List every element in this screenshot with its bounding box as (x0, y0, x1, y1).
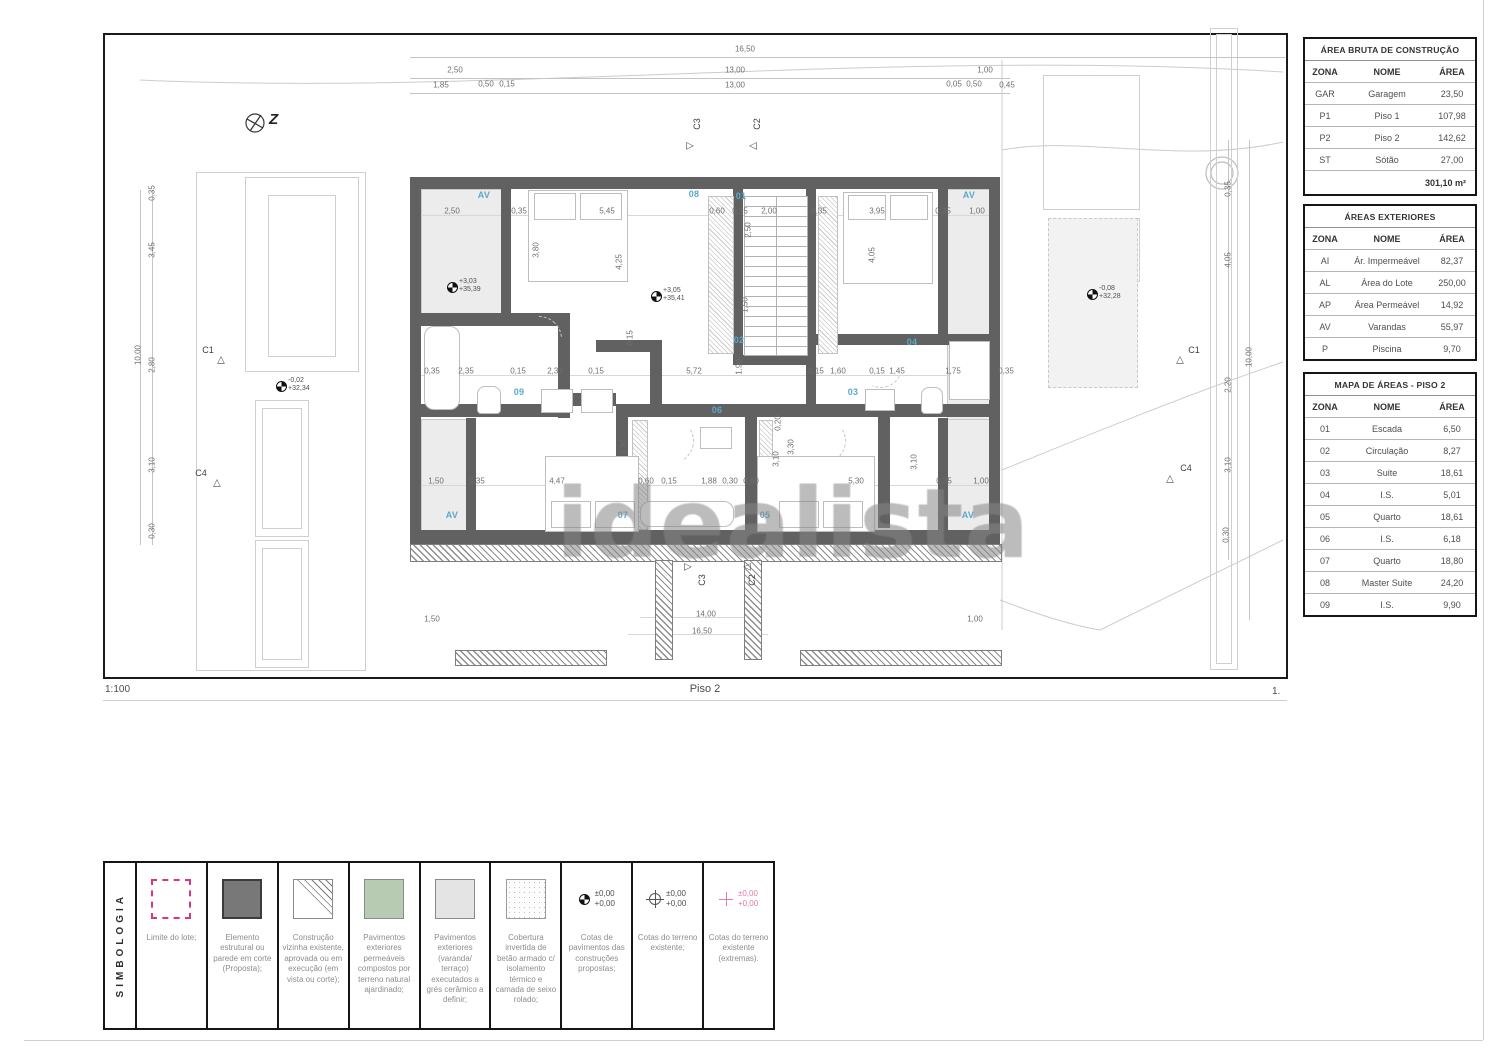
table-row: P1Piso 1107,98 (1305, 105, 1475, 127)
pillow (890, 195, 928, 220)
table-cell: 6,50 (1429, 424, 1475, 434)
plan-title: Piso 2 (660, 683, 750, 695)
dimension-text: 1,90 (735, 359, 744, 375)
room-label: 02 (734, 335, 745, 345)
dimension-text: 10,00 (1245, 347, 1254, 367)
dimension-text: 1,00 (967, 615, 983, 624)
table-cell: 18,61 (1429, 468, 1475, 478)
section-marker-label: C2 (752, 118, 762, 130)
dim-line (140, 190, 141, 545)
table-cell: Varandas (1345, 322, 1429, 332)
table-cell: I.S. (1345, 490, 1429, 500)
dimension-text: 0,35 (1224, 181, 1233, 197)
dimension-text: 0,30 (148, 523, 157, 539)
legend-items: Limite do lote;Elemento estrutural ou pa… (137, 863, 773, 1028)
legend-item-label: Construção vizinha existente, aprovada o… (282, 933, 345, 985)
elevation-cross-icon (719, 892, 733, 906)
table-cell: Piso 1 (1345, 111, 1429, 121)
table-header-cell: NOME (1345, 67, 1429, 77)
balcony-label: AV (446, 510, 458, 520)
room-label: 03 (848, 387, 859, 397)
table-row: AIÁr. Impermeável82,37 (1305, 250, 1475, 272)
dimension-text: 2,80 (148, 357, 157, 373)
elevation-value: -0,08+32,28 (1099, 285, 1121, 301)
existing-terrace (1048, 218, 1138, 388)
table-row: 02Circulação8,27 (1305, 440, 1475, 462)
legend-item: Cobertura invertida de betão armado c/ i… (491, 863, 562, 1028)
dimension-text: 0,35 (469, 477, 485, 486)
dimension-text: 0,35 (424, 367, 440, 376)
dimension-text: 1,75 (945, 367, 961, 376)
legend-swatch-stip (506, 879, 546, 919)
balcony-top-left (421, 189, 503, 317)
section-marker-label: C3 (692, 118, 702, 130)
legend-swatch-tri-h (293, 879, 333, 919)
elevation-open-icon (649, 893, 661, 905)
dimension-text: 0,35 (811, 207, 827, 216)
table-cell: Ár. Impermeável (1345, 256, 1429, 266)
dimension-text: 2,35 (458, 367, 474, 376)
wall-segment (466, 418, 476, 530)
table-row: 03Suite18,61 (1305, 462, 1475, 484)
legend-swatch-dark (222, 879, 262, 919)
dimension-text: 13,00 (725, 81, 745, 90)
toilet (477, 386, 501, 414)
dimension-text: 1,85 (433, 81, 449, 90)
dimension-text: 0,05 (946, 80, 962, 89)
room-label: 01 (736, 191, 747, 201)
dimension-text: 2,50 (447, 66, 463, 75)
legend-item: Limite do lote; (137, 863, 208, 1028)
table-cell: 01 (1305, 424, 1345, 434)
table-cell: 27,00 (1429, 155, 1475, 165)
section-marker-label: C1 (202, 345, 214, 355)
table-header-row: ZONANOMEÁREA (1305, 396, 1475, 418)
dimension-text: 1,50 (428, 477, 444, 486)
section-marker-label: C4 (1180, 463, 1192, 473)
legend-symbol-row: ±0,00+0,00 (579, 879, 615, 919)
table-cell: 03 (1305, 468, 1345, 478)
dimension-text: 3,10 (772, 451, 781, 467)
table-cell: P2 (1305, 133, 1345, 143)
dimension-text: 0,15 (869, 367, 885, 376)
table-cell: I.S. (1345, 600, 1429, 610)
dimension-text: 0,15 (626, 330, 635, 346)
dimension-text: 5,45 (599, 207, 615, 216)
table-cell: 6,18 (1429, 534, 1475, 544)
legend-symbol-row: ±0,00+0,00 (649, 879, 686, 919)
legend-cote-values: ±0,00+0,00 (595, 889, 615, 908)
table-cell: AI (1305, 256, 1345, 266)
table-cell: 9,70 (1429, 344, 1475, 354)
table-cell: Circulação (1345, 446, 1429, 456)
dim-line (421, 375, 996, 376)
dimension-text: 0,15 (732, 207, 748, 216)
dimension-text: 1,45 (889, 367, 905, 376)
legend-item-label: Cotas do terreno existente (extremas). (707, 933, 770, 964)
table-cell: AV (1305, 322, 1345, 332)
legend-swatch-lgray (435, 879, 475, 919)
table-cell: Master Suite (1345, 578, 1429, 588)
table-cell: ST (1305, 155, 1345, 165)
dimension-text: 0,15 (588, 367, 604, 376)
table-cell: Piso 2 (1345, 133, 1429, 143)
elevation-value: +3,05+35,41 (663, 287, 685, 303)
table-header-row: ZONANOMEÁREA (1305, 61, 1475, 83)
legend-cote-values: ±0,00+0,00 (666, 889, 686, 908)
section-marker-triangle-icon: △ (1166, 474, 1174, 485)
table-cell: 142,62 (1429, 133, 1475, 143)
table-cell: 05 (1305, 512, 1345, 522)
legend-item-label: Cobertura invertida de betão armado c/ i… (494, 933, 557, 1006)
dimension-text: 3,95 (869, 207, 885, 216)
legend-item-label: Cotas de pavimentos das construções prop… (565, 933, 628, 975)
dimension-text: 5,72 (686, 367, 702, 376)
table-row: PPiscina9,70 (1305, 338, 1475, 359)
section-marker-triangle-icon: △ (217, 355, 225, 366)
wall-segment (733, 355, 816, 365)
elevation-marker-icon (651, 291, 662, 302)
table-row: P2Piso 2142,62 (1305, 127, 1475, 149)
balcony-label: AV (478, 190, 490, 200)
dimension-text: 0,50 (966, 80, 982, 89)
legend-item-label: Elemento estrutural ou parede em corte (… (211, 933, 274, 975)
dimension-text: 0,50 (478, 80, 494, 89)
table-cell: 8,27 (1429, 446, 1475, 456)
dimension-text: 3,30 (787, 439, 796, 455)
table-cell: 24,20 (1429, 578, 1475, 588)
dimension-text: 3,10 (148, 457, 157, 473)
table-cell: 5,01 (1429, 490, 1475, 500)
dimension-text: 10,00 (134, 345, 143, 365)
dimension-text: 2,50 (744, 222, 753, 238)
wall-segment (501, 189, 511, 315)
blank-overlay (1008, 826, 1478, 1036)
table-row: 06I.S.6,18 (1305, 528, 1475, 550)
dimension-text: 2,33 (547, 367, 563, 376)
legend-item: Pavimentos exteriores (varanda/ terraço)… (421, 863, 492, 1028)
elevation-value: -0,02+32,34 (288, 377, 310, 393)
sink (541, 389, 573, 413)
table-cell: AP (1305, 300, 1345, 310)
table-cell: 82,37 (1429, 256, 1475, 266)
section-marker-label: C1 (1188, 345, 1200, 355)
dim-line (1249, 140, 1250, 620)
dim-line (410, 57, 1285, 58)
table-cell: 18,61 (1429, 512, 1475, 522)
legend-cote-values: ±0,00+0,00 (738, 889, 758, 908)
table-row: GARGaragem23,50 (1305, 83, 1475, 105)
table-cell: P (1305, 344, 1345, 354)
page-border-bottom (24, 1040, 1483, 1041)
wardrobe-hatch (818, 196, 838, 354)
table-cell: 07 (1305, 556, 1345, 566)
architectural-sheet: Z (0, 0, 1500, 1061)
balcony-bottom-left (421, 419, 468, 532)
dimension-text: 14,00 (696, 610, 716, 619)
legend-item: ±0,00+0,00Cotas do terreno existente (ex… (704, 863, 773, 1028)
table-header-cell: ZONA (1305, 402, 1345, 412)
watermark: idealista (556, 468, 1030, 580)
dimension-text: 2,50 (444, 207, 460, 216)
legend-item: ±0,00+0,00Cotas de pavimentos das constr… (562, 863, 633, 1028)
table-cell: Escada (1345, 424, 1429, 434)
legend-item: Elemento estrutural ou parede em corte (… (208, 863, 279, 1028)
table-cell: Garagem (1345, 89, 1429, 99)
toilet (921, 387, 943, 414)
dimension-text: 4,25 (615, 254, 624, 270)
elevation-filled-icon (579, 894, 590, 905)
dimension-text: 0,35 (148, 185, 157, 201)
table-cell: 06 (1305, 534, 1345, 544)
table-row: 05Quarto18,61 (1305, 506, 1475, 528)
wall-segment (410, 177, 421, 544)
room-label: 09 (514, 387, 525, 397)
dimension-text: 13,00 (725, 66, 745, 75)
neighbor-building (268, 195, 336, 357)
existing-construction-hatch (455, 650, 607, 666)
table-title: ÁREA BRUTA DE CONSTRUÇÃO (1305, 39, 1475, 61)
table-header-row: ZONANOMEÁREA (1305, 228, 1475, 250)
dim-line (1228, 140, 1229, 560)
table-total: 301,10 m² (1305, 171, 1475, 194)
table-cell: 02 (1305, 446, 1345, 456)
neighbor-wall (1216, 34, 1232, 664)
table-cell: 08 (1305, 578, 1345, 588)
section-marker-triangle-icon: ◁ (749, 141, 757, 152)
wardrobe-hatch (708, 196, 734, 354)
legend-swatch-green (364, 879, 404, 919)
table-row: ALÁrea do Lote250,00 (1305, 272, 1475, 294)
dimension-text: 0,30 (1222, 527, 1231, 543)
legend-item-label: Cotas do terreno existente; (636, 933, 699, 954)
dimension-text: 0,15 (499, 80, 515, 89)
table-cell: Área Permeável (1345, 300, 1429, 310)
legend-item-label: Limite do lote; (147, 933, 197, 943)
dimension-text: 2,00 (761, 207, 777, 216)
table-cell: 250,00 (1429, 278, 1475, 288)
room-label: 04 (907, 337, 918, 347)
dimension-text: 16,50 (735, 45, 755, 54)
dimension-text: 16,50 (692, 627, 712, 636)
wall-segment (410, 177, 1000, 189)
dimension-text: 0,35 (511, 207, 527, 216)
neighbor-building (262, 408, 302, 529)
elevation-value: +3,03+35,39 (459, 278, 481, 294)
table-cell: Área do Lote (1345, 278, 1429, 288)
existing-construction-hatch (800, 650, 1002, 666)
table-cell: 23,50 (1429, 89, 1475, 99)
section-marker-triangle-icon: △ (213, 478, 221, 489)
section-marker-label: C4 (195, 468, 207, 478)
table-header-cell: ÁREA (1429, 234, 1475, 244)
legend-title: SIMBOLOGIA (115, 893, 126, 997)
dimension-text: 1,50 (741, 297, 750, 313)
table-cell: Quarto (1345, 512, 1429, 522)
table-header-cell: ZONA (1305, 67, 1345, 77)
table-cell: GAR (1305, 89, 1345, 99)
elevation-marker-icon (276, 381, 287, 392)
table-title: MAPA DE ÁREAS - PISO 2 (1305, 374, 1475, 396)
neighbor-building (262, 548, 302, 660)
table-cell: AL (1305, 278, 1345, 288)
table-header-cell: ZONA (1305, 234, 1345, 244)
dimension-text: 0,60 (709, 207, 725, 216)
legend-item: Pavimentos exteriores permeáveis compost… (350, 863, 421, 1028)
legend-item: Construção vizinha existente, aprovada o… (279, 863, 350, 1028)
dimension-text: 0,45 (999, 81, 1015, 90)
dimension-text: 3,80 (532, 242, 541, 258)
table-cell: P1 (1305, 111, 1345, 121)
table-cell: Suite (1345, 468, 1429, 478)
table-cell: 09 (1305, 600, 1345, 610)
table-row: 07Quarto18,80 (1305, 550, 1475, 572)
page-border-right (1483, 0, 1484, 1040)
table-cell: 107,98 (1429, 111, 1475, 121)
dim-line (410, 93, 1010, 94)
legend-item: ±0,00+0,00Cotas do terreno existente; (633, 863, 704, 1028)
sink (581, 389, 613, 413)
table-cell: 04 (1305, 490, 1345, 500)
table-cell: Sótão (1345, 155, 1429, 165)
elevation-marker-icon (1087, 289, 1098, 300)
table-cell: 18,80 (1429, 556, 1475, 566)
north-label: Z (269, 111, 278, 128)
table-cell: 55,97 (1429, 322, 1475, 332)
dimension-text: 0,35 (935, 207, 951, 216)
dimension-text: 0,35 (998, 367, 1014, 376)
legend-item-label: Pavimentos exteriores permeáveis compost… (353, 933, 416, 995)
scale-label: 1:100 (105, 684, 130, 695)
balcony-label: AV (963, 190, 975, 200)
neighbor-building (1043, 75, 1140, 210)
legend: SIMBOLOGIA Limite do lote;Elemento estru… (103, 861, 775, 1030)
room-label: 08 (689, 189, 700, 199)
table-row: 04I.S.5,01 (1305, 484, 1475, 506)
pillow (534, 193, 576, 220)
mapa-areas-table: MAPA DE ÁREAS - PISO 2ZONANOMEÁREA01Esca… (1303, 372, 1477, 617)
dimension-text: 3,45 (148, 242, 157, 258)
dimension-text: 0,15 (808, 367, 824, 376)
dimension-text: 0,20 (774, 415, 783, 431)
area-bruta-table: ÁREA BRUTA DE CONSTRUÇÃOZONANOMEÁREAGARG… (1303, 37, 1477, 196)
section-marker-triangle-icon: △ (1176, 355, 1184, 366)
sink (700, 427, 732, 449)
dimension-text: 1,60 (830, 367, 846, 376)
section-marker-triangle-icon: ▷ (686, 141, 694, 152)
dimension-text: 3,10 (1224, 457, 1233, 473)
legend-item-label: Pavimentos exteriores (varanda/ terraço)… (424, 933, 487, 1006)
table-row: STSótão27,00 (1305, 149, 1475, 171)
legend-symbol-row: ±0,00+0,00 (719, 879, 758, 919)
table-row: 09I.S.9,90 (1305, 594, 1475, 615)
footer-rule (103, 700, 1287, 701)
table-row: 08Master Suite24,20 (1305, 572, 1475, 594)
table-cell: Piscina (1345, 344, 1429, 354)
table-cell: I.S. (1345, 534, 1429, 544)
table-cell: 14,92 (1429, 300, 1475, 310)
table-title: ÁREAS EXTERIORES (1305, 206, 1475, 228)
table-header-cell: NOME (1345, 234, 1429, 244)
page-number: 1. (1272, 686, 1280, 697)
table-cell: Quarto (1345, 556, 1429, 566)
table-header-cell: ÁREA (1429, 67, 1475, 77)
staircase (744, 196, 808, 356)
table-row: APÁrea Permeável14,92 (1305, 294, 1475, 316)
areas-exteriores-table: ÁREAS EXTERIORESZONANOMEÁREAAIÁr. Imperm… (1303, 204, 1477, 361)
dimension-text: 3,30 (620, 439, 629, 455)
table-header-cell: ÁREA (1429, 402, 1475, 412)
table-cell: 9,90 (1429, 600, 1475, 610)
table-header-cell: NOME (1345, 402, 1429, 412)
dimension-text: 1,00 (969, 207, 985, 216)
dimension-text: 1,00 (977, 66, 993, 75)
sink (865, 389, 895, 411)
dimension-text: 4,05 (868, 247, 877, 263)
dimension-text: 2,20 (1224, 377, 1233, 393)
wall-segment (650, 340, 662, 404)
legend-title-cell: SIMBOLOGIA (105, 863, 137, 1028)
dimension-text: 0,15 (510, 367, 526, 376)
elevation-marker-icon (447, 282, 458, 293)
dimension-text: 1,50 (424, 615, 440, 624)
table-row: AVVarandas55,97 (1305, 316, 1475, 338)
legend-swatch-lot (151, 879, 191, 919)
table-row: 01Escada6,50 (1305, 418, 1475, 440)
room-label: 06 (712, 405, 723, 415)
dimension-text: 4,05 (1224, 252, 1233, 268)
